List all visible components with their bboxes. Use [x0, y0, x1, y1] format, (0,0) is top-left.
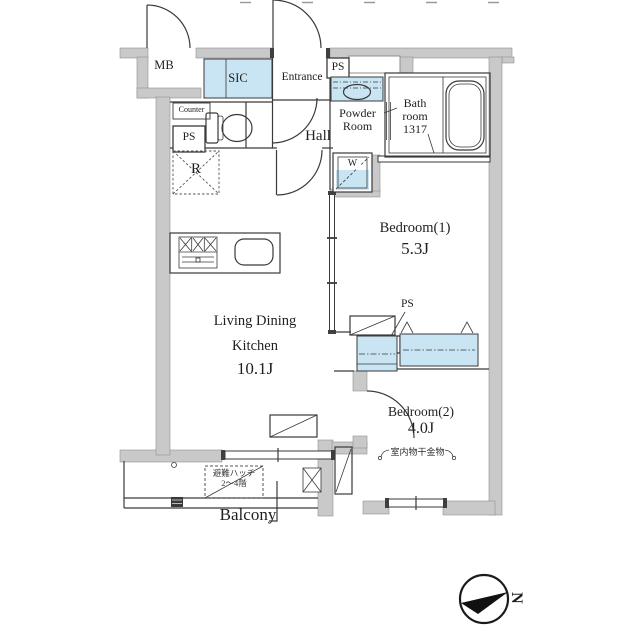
compass-icon [460, 575, 508, 623]
sic-label: SIC [204, 71, 272, 85]
floor-plan-canvas: MB SIC Entrance PS Counter PS R Hall Pow… [0, 0, 640, 640]
mb-door [147, 5, 190, 48]
shelf-ldk [270, 415, 317, 437]
compass-north-letter: N [507, 588, 525, 608]
ps-closet-label: PS [401, 298, 427, 311]
closet-right [400, 322, 478, 366]
washer-label: W [345, 158, 360, 169]
washbasin-icon [331, 77, 383, 101]
ldk-area: 10.1J [175, 359, 335, 378]
evacuation-hatch-line2: 2〜4階 [205, 479, 263, 489]
bedroom2-label: Bedroom(2) 4.0J [360, 404, 482, 438]
shelf-bedroom1 [350, 316, 395, 335]
balcony-partition-box [303, 468, 321, 492]
ldk-label-line1: Living Dining [175, 313, 335, 329]
bedroom1-area: 5.3J [340, 239, 490, 258]
bathroom-label-line1: Bath [387, 97, 443, 110]
evacuation-hatch-label: 避難ハッチ 2〜4階 [205, 469, 263, 488]
ps-utility-label: PS [173, 131, 205, 144]
bedroom2-area: 4.0J [360, 420, 482, 438]
ldk-label-line2: Kitchen [175, 338, 335, 354]
ldk-label: Living Dining Kitchen 10.1J [175, 313, 335, 379]
wall-niche [349, 56, 400, 73]
entrance-label: Entrance [274, 71, 330, 84]
powder-room-label: Powder Room [330, 107, 385, 134]
balcony-label: Balcony [208, 505, 288, 524]
counter-label: Counter [173, 106, 210, 115]
bedroom1-label: Bedroom(1) 5.3J [340, 220, 490, 258]
bathtub-icon [446, 81, 484, 150]
bathroom-label-line2: room [387, 110, 443, 123]
ps-top-label: PS [327, 61, 349, 74]
entrance-door [270, 0, 330, 58]
hall-ldk-door [277, 150, 323, 195]
refrigerator-label: R [173, 161, 219, 178]
mb-label: MB [142, 58, 186, 72]
laundry-note: 室内物干金物 [375, 447, 460, 457]
closet-left [357, 336, 397, 371]
kitchen-counter [170, 233, 280, 273]
bathroom-label: Bath room 1317 [387, 97, 443, 136]
toilet-icon [206, 113, 252, 143]
drain-icons [171, 463, 183, 508]
bedroom2-window [385, 496, 447, 510]
bedroom1-name: Bedroom(1) [340, 220, 490, 236]
closets [350, 312, 478, 371]
powder-room-label-line2: Room [330, 120, 385, 133]
bedroom2-name: Bedroom(2) [360, 404, 482, 419]
powder-room-label-line1: Powder [330, 107, 385, 120]
bathroom-size-code: 1317 [387, 123, 443, 136]
